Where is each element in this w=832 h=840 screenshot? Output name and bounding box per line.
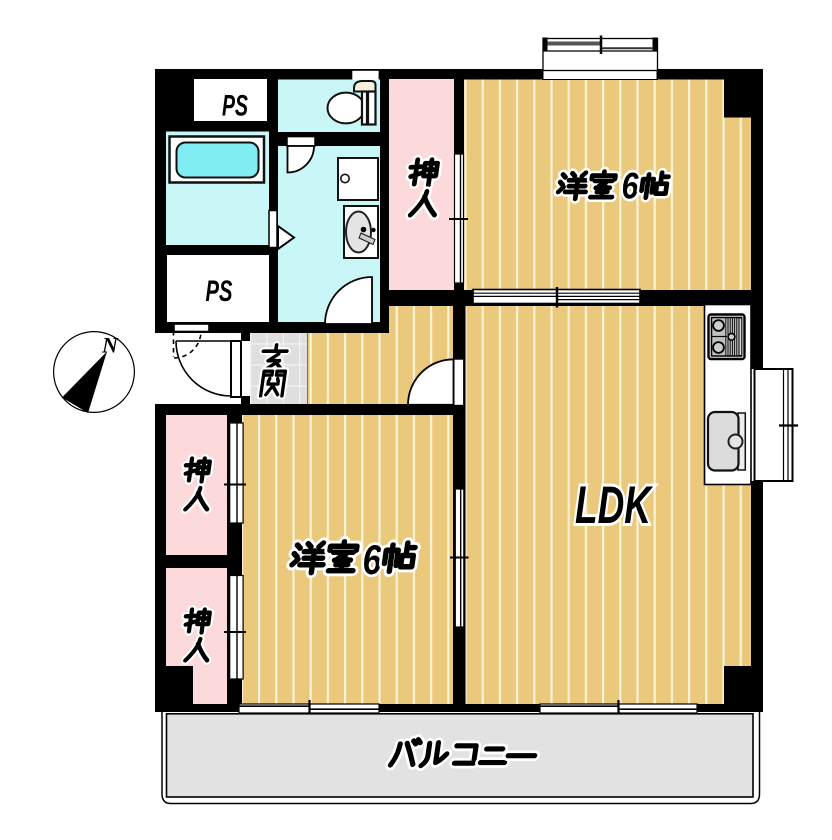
svg-text:6: 6	[363, 536, 383, 583]
svg-text:N: N	[101, 332, 119, 357]
svg-text:LDK: LDK	[575, 476, 654, 535]
svg-text:PS: PS	[206, 275, 233, 308]
svg-text:6: 6	[622, 166, 639, 207]
svg-text:PS: PS	[222, 90, 248, 123]
